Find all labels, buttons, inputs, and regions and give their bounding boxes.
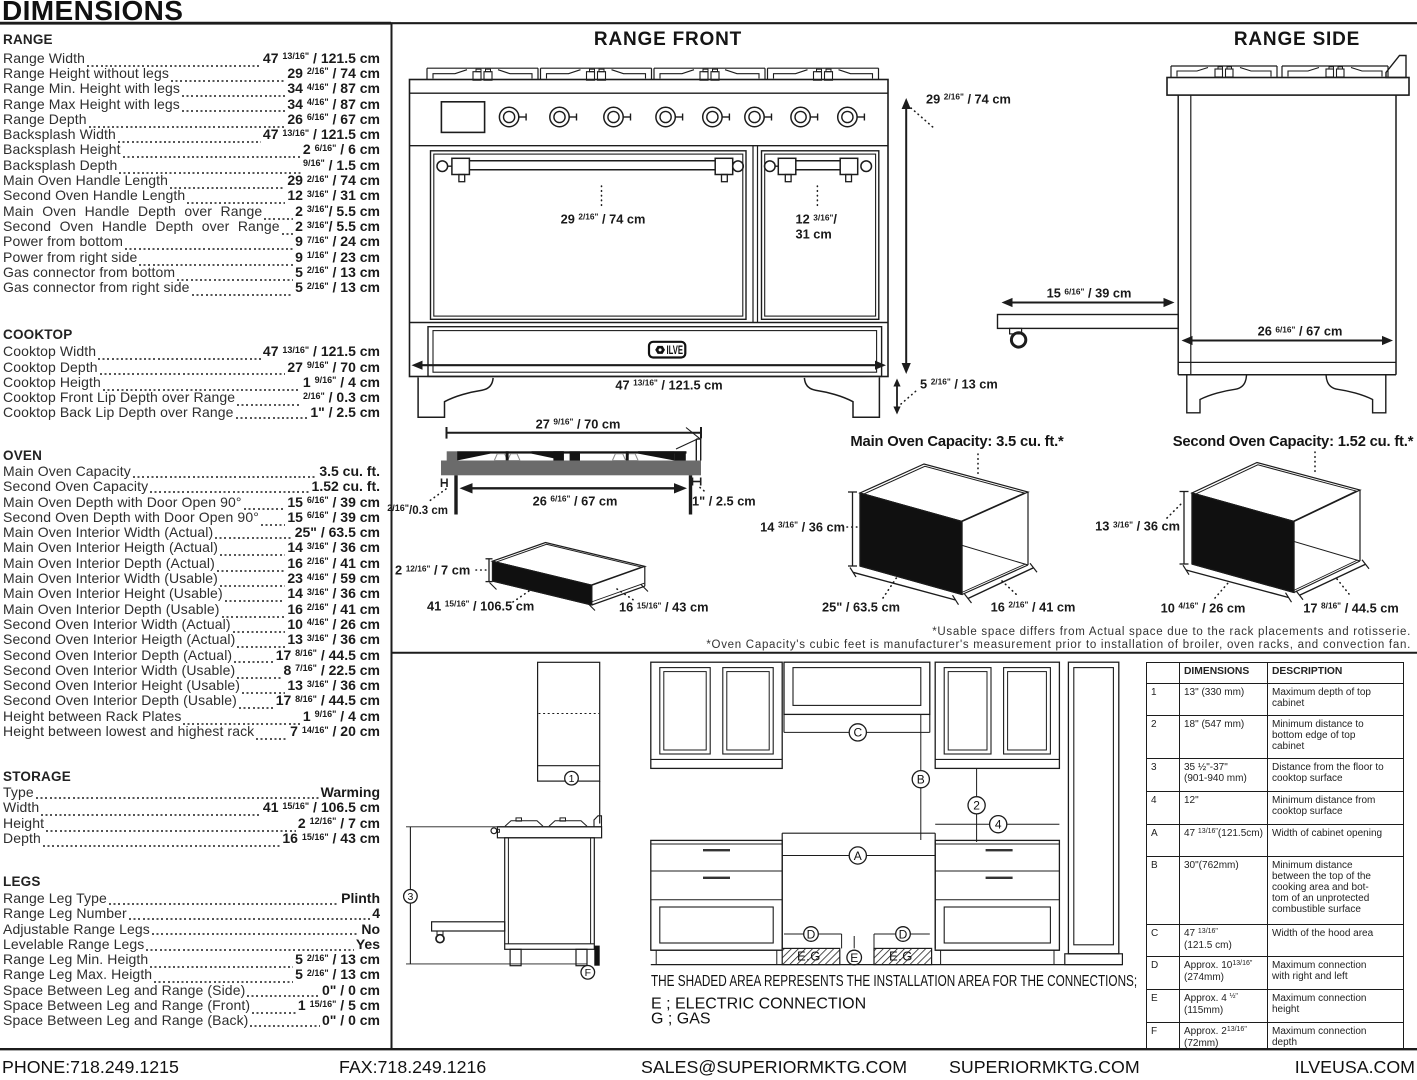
svg-text:ILVE: ILVE [667, 345, 684, 357]
svg-text:4: 4 [995, 818, 1002, 832]
svg-text:F: F [585, 967, 591, 979]
svg-text:D: D [807, 927, 816, 941]
svg-text:2: 2 [973, 799, 980, 813]
svg-text:B: B [917, 773, 925, 787]
svg-text:1: 1 [569, 773, 575, 785]
svg-text:E: E [850, 951, 858, 965]
svg-text:D: D [899, 927, 908, 941]
svg-text:C: C [853, 726, 862, 740]
svg-text:A: A [854, 849, 862, 863]
svg-text:3: 3 [407, 891, 413, 903]
